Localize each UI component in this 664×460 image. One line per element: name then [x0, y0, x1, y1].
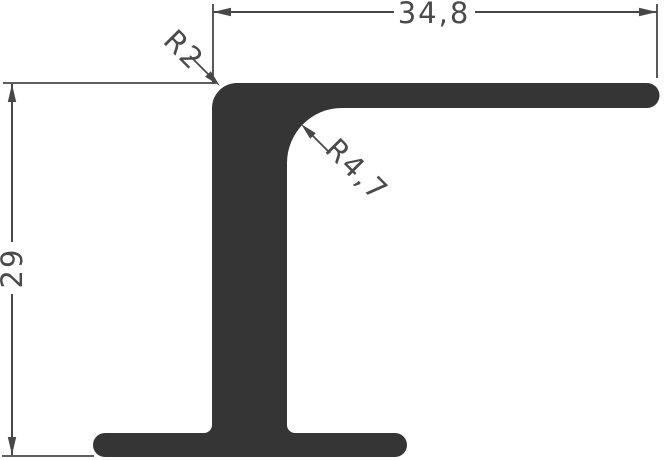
width-dimension-label: 34,8 — [398, 0, 471, 30]
dimension-width: 34,8 — [213, 0, 657, 84]
height-arrow-down-icon — [8, 437, 16, 455]
profile-cross-section — [93, 83, 659, 457]
technical-drawing-page: 34,8 29 R2 R4,7 — [0, 0, 664, 460]
callout-inner-fillet-radius: R4,7 — [301, 124, 395, 208]
profile-drawing-canvas: 34,8 29 R2 R4,7 — [0, 0, 664, 460]
callout-outer-corner-radius: R2 — [157, 23, 220, 86]
height-arrow-up-icon — [8, 84, 16, 102]
width-arrow-left-icon — [213, 8, 231, 16]
inner-fillet-radius-label: R4,7 — [319, 132, 396, 209]
height-dimension-label: 29 — [0, 248, 29, 289]
width-arrow-right-icon — [639, 8, 657, 16]
dimension-height: 29 — [0, 83, 216, 456]
